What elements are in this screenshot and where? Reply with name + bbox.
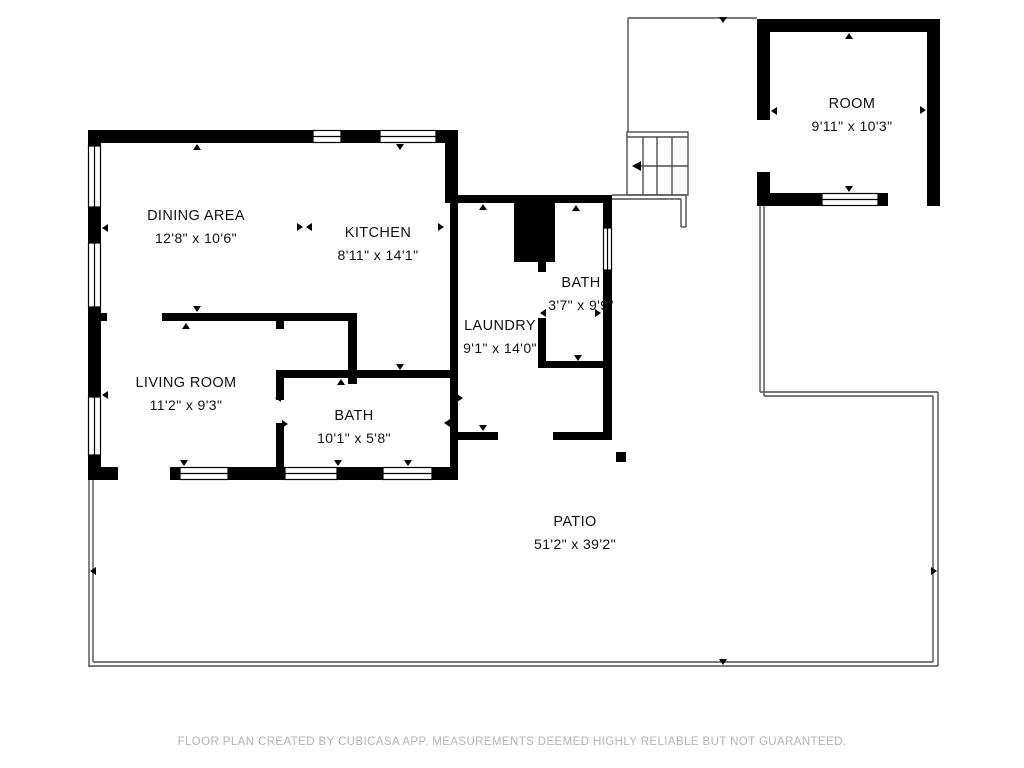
room-name: LIVING ROOM bbox=[135, 372, 236, 394]
room-dimensions: 51'2" x 39'2" bbox=[534, 533, 616, 555]
stairs-direction-arrow bbox=[632, 161, 641, 171]
chimney-block bbox=[514, 203, 555, 262]
window bbox=[383, 468, 432, 480]
window bbox=[89, 146, 101, 207]
window bbox=[380, 131, 436, 143]
room-name: KITCHEN bbox=[338, 222, 419, 244]
window bbox=[180, 468, 228, 480]
room-label-bath-lower: BATH 10'1" x 5'8" bbox=[317, 405, 391, 449]
room-dimensions: 9'11" x 10'3" bbox=[812, 115, 893, 137]
footer-disclaimer: FLOOR PLAN CREATED BY CUBICASA APP. MEAS… bbox=[0, 736, 1024, 748]
window bbox=[89, 243, 101, 307]
entry-landing bbox=[612, 195, 686, 227]
room-label-bath-upper: BATH 3'7" x 9'9" bbox=[548, 272, 614, 316]
room-dimensions: 8'11" x 14'1" bbox=[338, 244, 419, 266]
floor-plan-page: DINING AREA 12'8" x 10'6" KITCHEN 8'11" … bbox=[0, 0, 1024, 768]
window bbox=[604, 228, 612, 270]
room-name: BATH bbox=[548, 272, 614, 294]
room-name: DINING AREA bbox=[147, 205, 245, 227]
room-label-laundry: LAUNDRY 9'1" x 14'0" bbox=[463, 315, 537, 359]
post-block bbox=[616, 452, 626, 462]
room-dimensions: 9'1" x 14'0" bbox=[463, 337, 537, 359]
room-dimensions: 11'2" x 9'3" bbox=[135, 394, 236, 416]
window bbox=[313, 131, 341, 143]
room-name: LAUNDRY bbox=[463, 315, 537, 337]
room-name: ROOM bbox=[812, 93, 893, 115]
window bbox=[822, 194, 878, 206]
room-dimensions: 12'8" x 10'6" bbox=[147, 227, 245, 249]
room-label-kitchen: KITCHEN 8'11" x 14'1" bbox=[338, 222, 419, 266]
patio-outline bbox=[89, 206, 938, 667]
room-label-dining-area: DINING AREA 12'8" x 10'6" bbox=[147, 205, 245, 249]
room-name: PATIO bbox=[534, 511, 616, 533]
room-name: BATH bbox=[317, 405, 391, 427]
window bbox=[285, 468, 337, 480]
room-dimensions: 3'7" x 9'9" bbox=[548, 294, 614, 316]
room-dimensions: 10'1" x 5'8" bbox=[317, 427, 391, 449]
window bbox=[89, 397, 101, 455]
room-label-room: ROOM 9'11" x 10'3" bbox=[812, 93, 893, 137]
stairs bbox=[627, 18, 757, 195]
room-label-living-room: LIVING ROOM 11'2" x 9'3" bbox=[135, 372, 236, 416]
room-label-patio: PATIO 51'2" x 39'2" bbox=[534, 511, 616, 555]
